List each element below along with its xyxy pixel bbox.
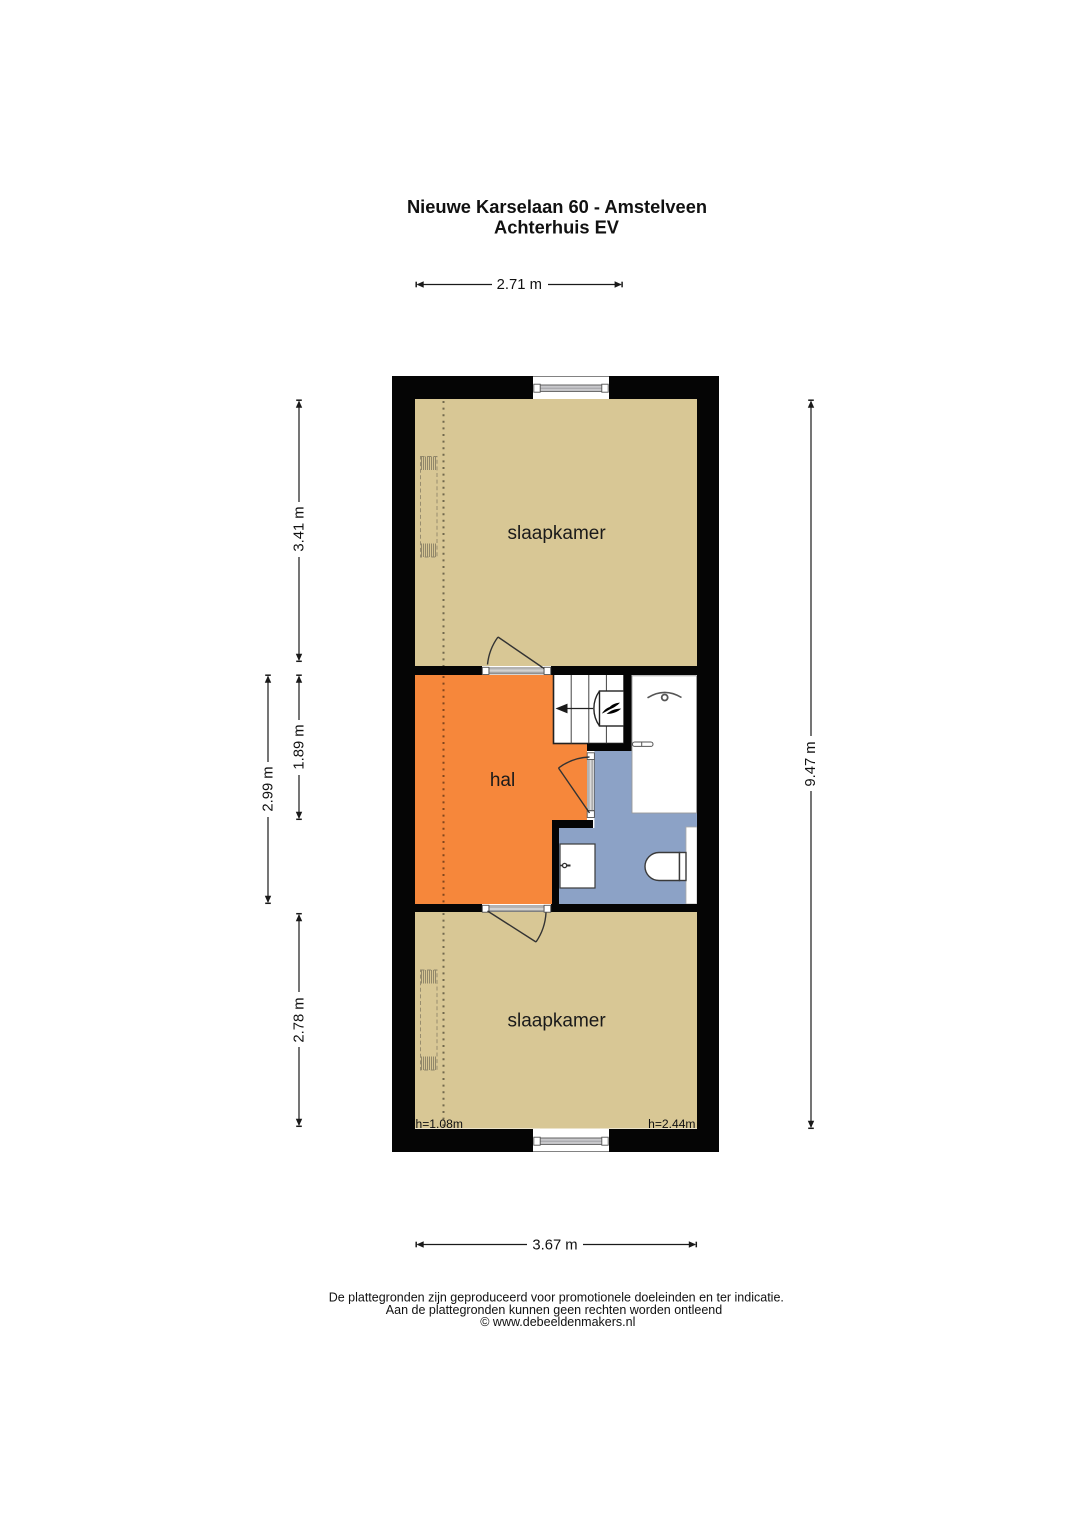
svg-text:© www.debeeldenmakers.nl: © www.debeeldenmakers.nl [480, 1315, 635, 1329]
svg-text:3.67 m: 3.67 m [532, 1238, 577, 1254]
svg-text:slaapkamer: slaapkamer [507, 1011, 606, 1032]
svg-text:Nieuwe Karselaan 60 - Amstelve: Nieuwe Karselaan 60 - Amstelveen [407, 196, 707, 217]
svg-text:1.89 m: 1.89 m [292, 724, 308, 769]
svg-text:h=2.44m: h=2.44m [648, 1117, 695, 1131]
svg-text:hal: hal [490, 770, 515, 791]
svg-text:3.41 m: 3.41 m [292, 506, 308, 551]
svg-text:h=1.08m: h=1.08m [416, 1117, 463, 1131]
svg-text:slaapkamer: slaapkamer [507, 523, 606, 544]
svg-text:9.47 m: 9.47 m [803, 741, 819, 786]
svg-text:2.71 m: 2.71 m [497, 277, 542, 293]
svg-text:2.99 m: 2.99 m [261, 766, 277, 811]
svg-text:2.78 m: 2.78 m [292, 997, 308, 1042]
svg-text:Achterhuis EV: Achterhuis EV [494, 216, 620, 237]
